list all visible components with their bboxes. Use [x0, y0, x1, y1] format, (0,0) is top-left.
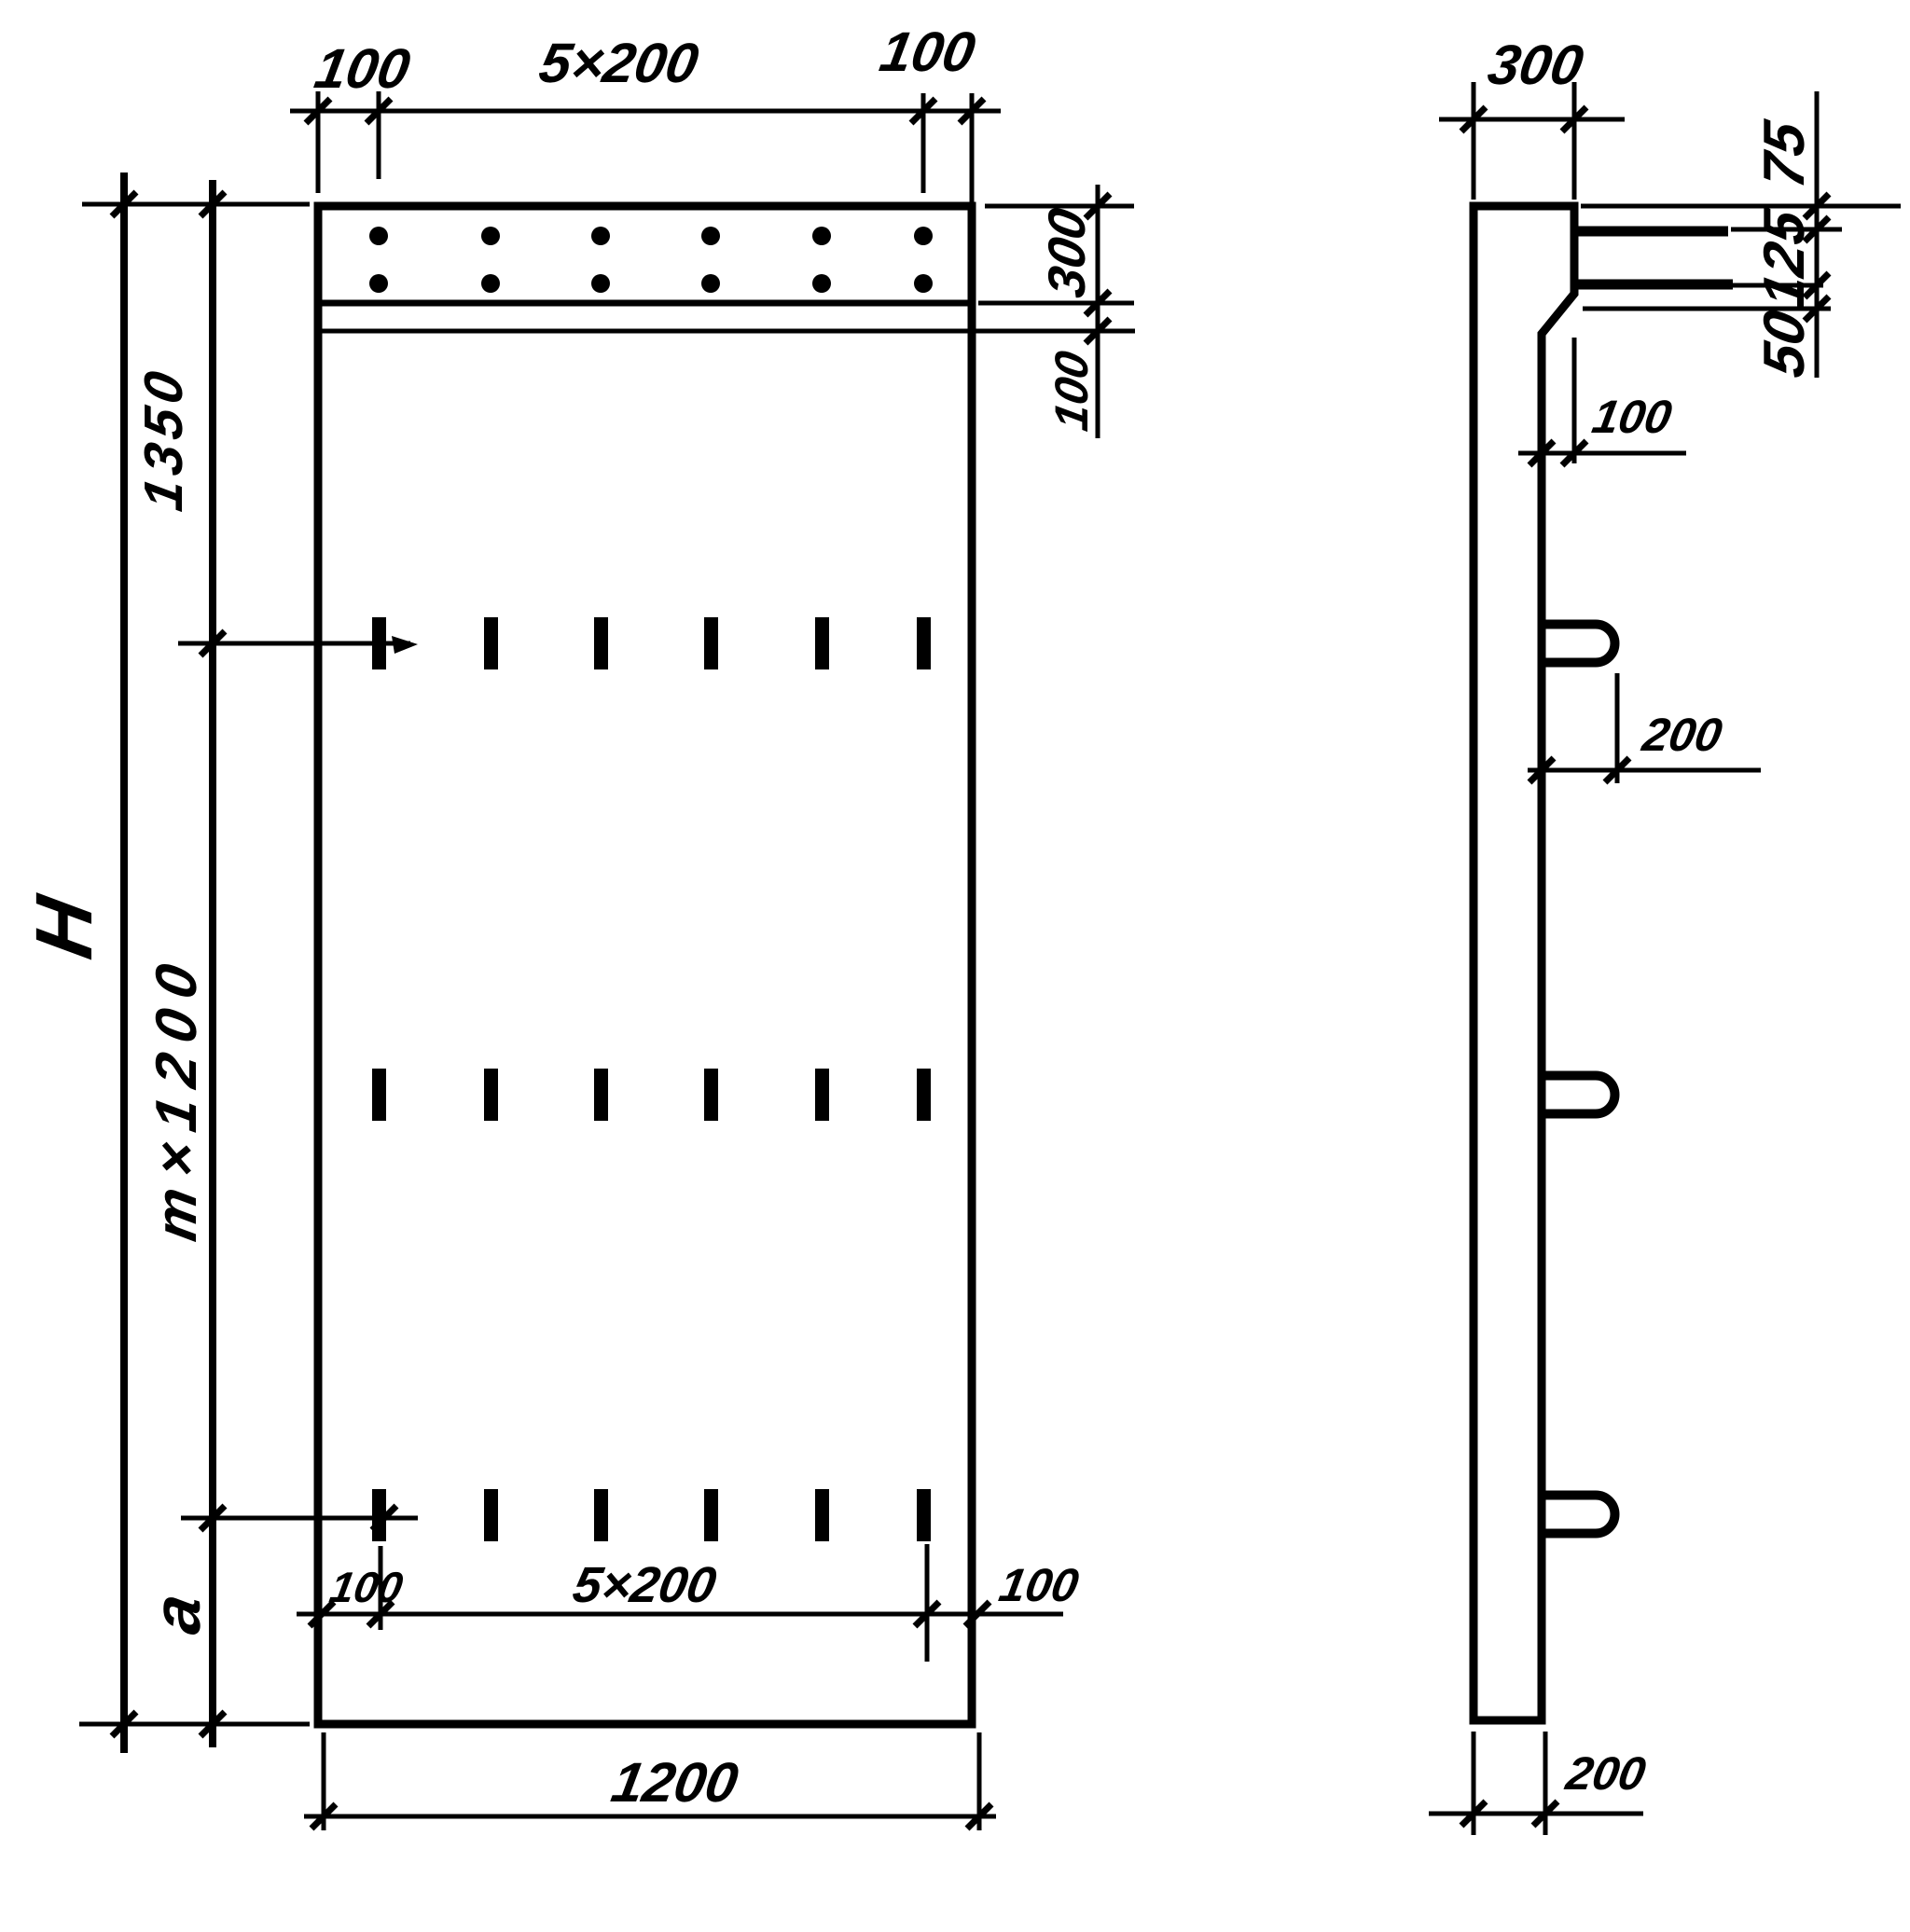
svg-text:300: 300 [1037, 204, 1096, 301]
svg-text:100: 100 [876, 20, 980, 82]
svg-text:100: 100 [995, 1558, 1082, 1611]
svg-text:200: 200 [1561, 1746, 1649, 1800]
svg-text:100: 100 [1045, 347, 1098, 434]
svg-text:1350: 1350 [133, 362, 194, 515]
svg-text:75: 75 [1751, 116, 1816, 192]
svg-text:50: 50 [1751, 306, 1816, 381]
svg-text:300: 300 [1484, 33, 1588, 95]
svg-text:100: 100 [311, 36, 415, 99]
svg-text:125: 125 [1751, 204, 1816, 313]
svg-text:1200: 1200 [607, 1750, 743, 1813]
svg-text:200: 200 [1638, 708, 1725, 761]
svg-text:5×200: 5×200 [534, 31, 703, 93]
svg-text:100: 100 [1588, 390, 1675, 443]
svg-text:100: 100 [326, 1563, 407, 1611]
svg-text:5×200: 5×200 [569, 1556, 720, 1613]
svg-text:m×1200: m×1200 [144, 947, 208, 1245]
